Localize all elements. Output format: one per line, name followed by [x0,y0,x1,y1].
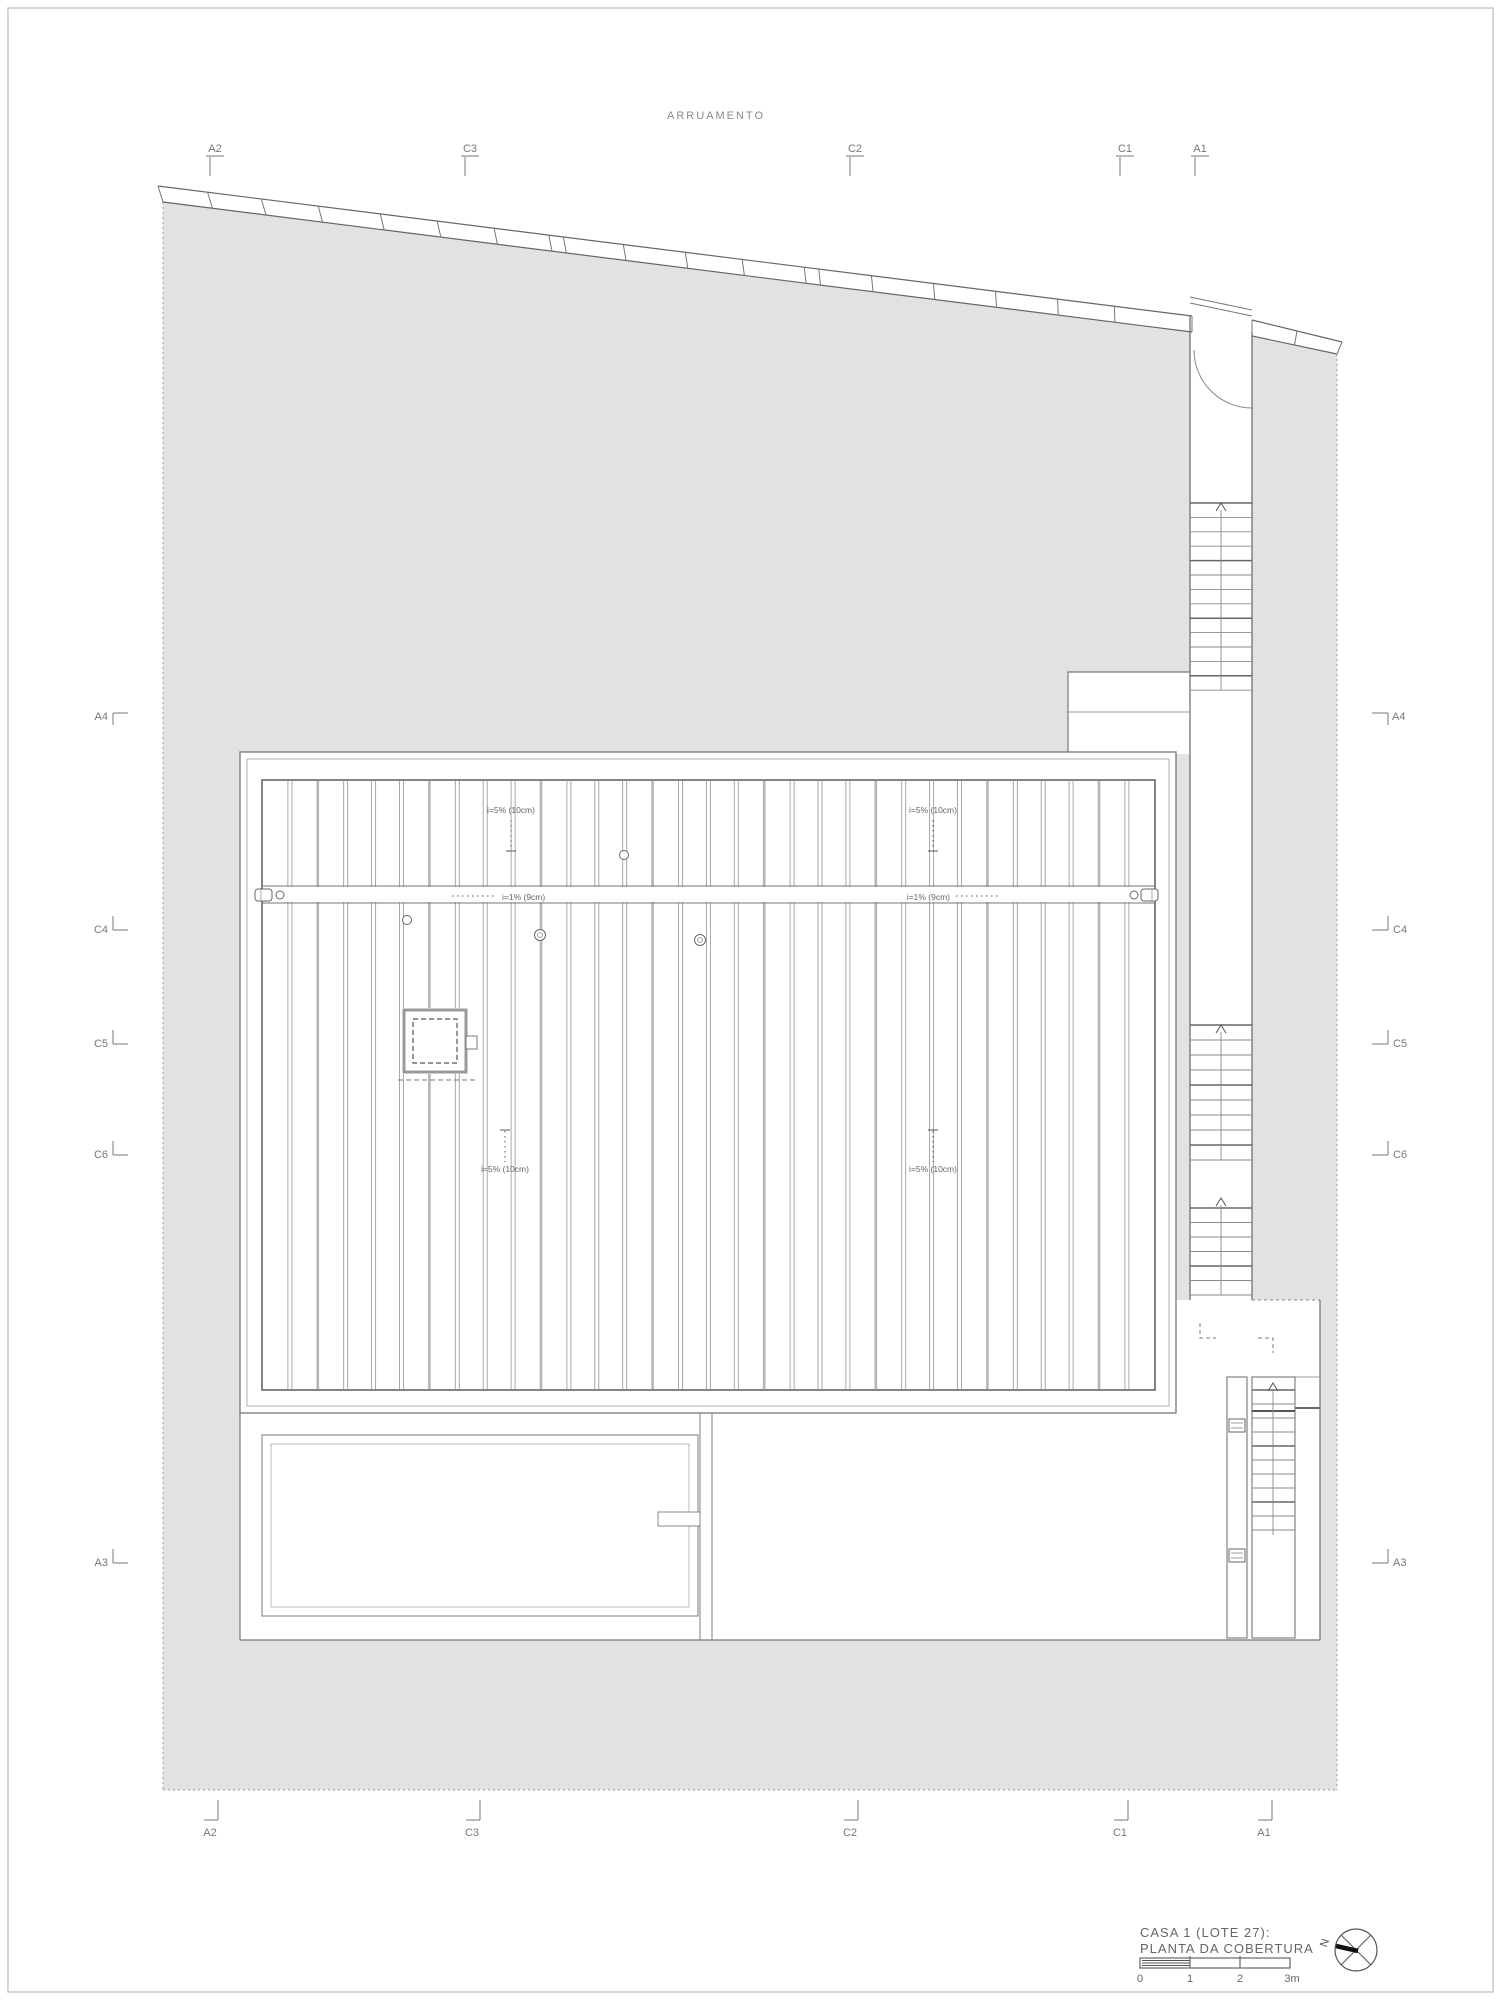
roof-plan-drawing: ARRUAMENTO [0,0,1501,2000]
drawing-title-line2: PLANTA DA COBERTURA [1140,1941,1314,1956]
slope-label: i=5% (10cm) [481,1164,529,1174]
drain-icon [535,930,546,941]
stair-flight-garden [1252,1377,1295,1638]
gutter-slope-label: i=1% (9cm) [907,892,950,902]
entry-porch-area [1068,672,1190,754]
grid-marker-top-a1: A1 [1193,143,1206,155]
slope-label: i=5% (10cm) [487,805,535,815]
backyard-area [240,1413,1320,1640]
grid-marker-right-c4: C4 [1393,924,1407,936]
slope-label: i=5% (10cm) [909,1164,957,1174]
scale-tick-0: 0 [1137,1973,1143,1985]
grid-marker-top-c1: C1 [1118,143,1132,155]
slope-label: i=5% (10cm) [909,805,957,815]
grid-marker-left-c4: C4 [94,924,108,936]
grid-marker-right-a3: A3 [1393,1557,1406,1569]
page: { "street_label": "ARRUAMENTO", "grid_ma… [0,0,1501,2000]
drain-icon [403,916,412,925]
divider-gate [658,1512,700,1526]
drain-icon [276,891,284,899]
grid-marker-bottom-c1: C1 [1113,1827,1127,1839]
grid-marker-bottom-a2: A2 [203,1827,216,1839]
drain-icon [620,851,629,860]
grid-marker-right-c6: C6 [1393,1149,1407,1161]
grid-marker-top-c3: C3 [463,143,477,155]
lot [163,202,1337,1790]
chimney-tab [466,1036,477,1049]
grid-marker-left-a3: A3 [95,1557,108,1569]
north-compass: N [1318,1929,1377,1971]
roof-gutter [255,886,1158,903]
title-block: CASA 1 (LOTE 27): PLANTA DA COBERTURA 0 … [1137,1925,1377,1985]
grid-marker-right-c5: C5 [1393,1038,1407,1050]
street-label: ARRUAMENTO [667,110,765,122]
scale-tick-2: 2 [1237,1973,1243,1985]
grid-marker-bottom-c3: C3 [465,1827,479,1839]
chimney [398,1008,478,1080]
grid-marker-bottom-c2: C2 [843,1827,857,1839]
grid-marker-left-c5: C5 [94,1038,108,1050]
gutter-outlet-right [1141,889,1158,901]
grid-marker-right-a4: A4 [1392,711,1405,723]
scale-tick-1: 1 [1187,1973,1193,1985]
roof-area [240,752,1176,1413]
gutter-outlet-left [255,889,272,901]
grid-marker-top-a2: A2 [208,143,221,155]
wall-vent [1229,1549,1245,1562]
side-terrace-area [1176,1300,1320,1415]
drawing-title-line1: CASA 1 (LOTE 27): [1140,1925,1270,1940]
gutter-slope-label: i=1% (9cm) [502,892,545,902]
wall-vent [1229,1419,1245,1432]
street-wall-tick [1058,299,1059,315]
grid-marker-left-c6: C6 [94,1149,108,1161]
gutter-band [263,887,1154,902]
drain-icon [695,935,706,946]
compass-north-label: N [1318,1937,1332,1948]
scale-tick-3m: 3m [1284,1973,1299,1985]
stair-side-wall [1227,1377,1247,1638]
grid-marker-left-a4: A4 [95,711,108,723]
scale-bar: 0 1 2 3m [1137,1956,1300,1985]
grid-marker-bottom-a1: A1 [1257,1827,1270,1839]
drain-icon [1130,891,1138,899]
grid-marker-top-c2: C2 [848,143,862,155]
